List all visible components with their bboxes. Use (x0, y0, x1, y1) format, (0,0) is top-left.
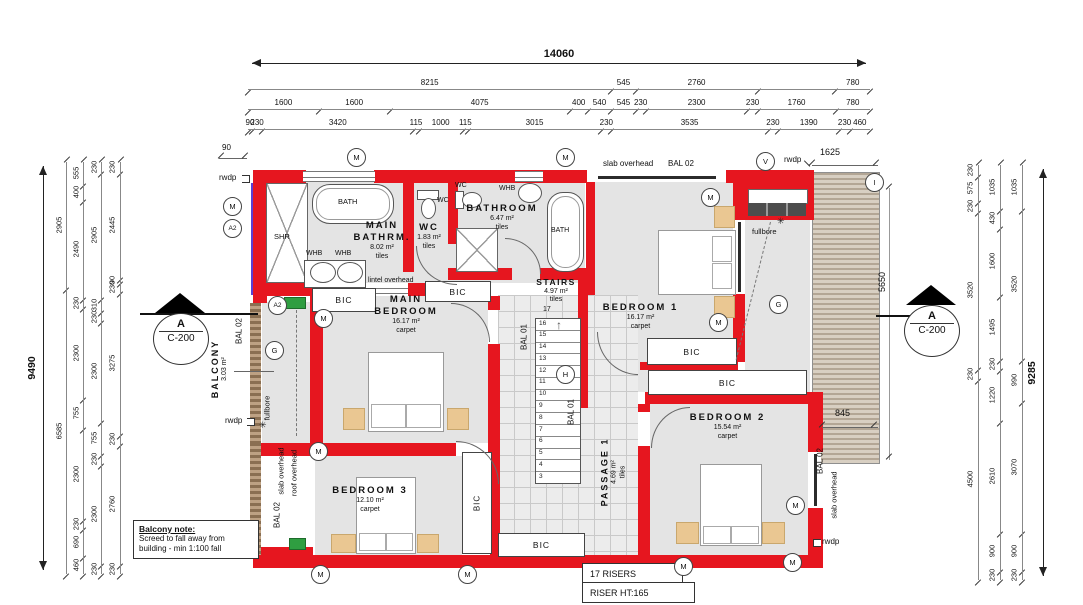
wall-main-bedroom-right-b (488, 344, 500, 454)
dim-1625-line (812, 165, 878, 166)
bal01-label-right: BAL 01 (567, 399, 576, 425)
pillow (359, 533, 386, 551)
pillow (703, 526, 731, 544)
marker-g: G (265, 341, 284, 360)
roof-overhead-left: roof overhead (290, 450, 299, 496)
room-label-bedroom2: BEDROOM 2 15.54 m² carpet (685, 412, 770, 441)
stairs-top-number: 17 (543, 306, 551, 313)
marker-m: M (709, 313, 728, 332)
dim-left-col4: 230290531023023007552302300230 (86, 162, 102, 574)
cupboard-dark-hatch (748, 203, 806, 216)
room-label-passage: PASSAGE 1 4.69 m² tiles (600, 438, 629, 507)
marker-v: V (756, 152, 775, 171)
dim-right-col-mid: 10354301600149523012202610900230 (984, 165, 1001, 580)
rwdp-top-right: rwdp (784, 155, 801, 164)
section-marker-right: A C-200 (904, 305, 960, 357)
bic-bedroom3-label: BIC (473, 495, 482, 511)
slab-overhead-left: slab overhead (277, 447, 286, 494)
dim-5650: 5650 (877, 272, 887, 292)
marker-i: I (865, 173, 884, 192)
dim-right-col-outer: 103535209903070900230 (1006, 165, 1023, 580)
room-label-stairs: STAIRS 4.97 m² tiles (525, 277, 587, 305)
pillow (731, 526, 759, 544)
bath-label: BATH (338, 197, 357, 206)
whb-basin-3 (518, 183, 542, 203)
dim-845: 845 (835, 408, 850, 418)
shower-bathroom (456, 228, 498, 272)
dim-line (252, 63, 866, 65)
bal01-label-left: BAL 01 (520, 324, 529, 350)
marker-m: M (701, 188, 720, 207)
rwdp-top-left: rwdp (219, 173, 236, 182)
marker-h: H (556, 365, 575, 384)
pillow (406, 404, 441, 428)
marker-m: M (309, 442, 328, 461)
side-table (331, 534, 356, 553)
section-triangle-icon (155, 293, 205, 313)
side-table (714, 206, 735, 228)
bath2-label: BATH (551, 227, 569, 234)
cupboard-counter (748, 189, 808, 204)
floor-balcony-left (262, 302, 310, 443)
bal02-left-lower: BAL 02 (273, 502, 282, 528)
wall-passage-a (638, 404, 650, 412)
balcony-drain-dashed-line (296, 310, 297, 436)
marker-a2: A2 (268, 296, 287, 315)
fullbore-outlet-icon: ✳ (259, 420, 267, 431)
lintel-label: lintel overhead (368, 277, 414, 284)
dim-90: 90 (222, 143, 231, 152)
dim-right-col-inner: 23057523035202304500 (962, 165, 979, 580)
balcony-note-box: Balcony note: Screed to fall away from b… (133, 520, 259, 559)
room-label-bedroom3: BEDROOM 3 12.10 m² carpet (330, 485, 410, 514)
pillow (371, 404, 406, 428)
dim-left-col3: 555400249023023007552300230690460 (68, 162, 84, 574)
room-label-balcony: BALCONY 3.03 m² (210, 340, 230, 399)
wall-finish-line (251, 183, 253, 295)
bic-bedroom2: BIC (648, 370, 807, 395)
fullbore-outlet-icon: ✳ (777, 216, 785, 227)
marker-m: M (223, 197, 242, 216)
stairs-up-arrow-icon: ↑ (556, 318, 562, 332)
balcony-leader-line (234, 371, 274, 372)
section-line-left (140, 313, 258, 315)
dim-left-overall: 9490 (34, 162, 48, 574)
dim-left-col5: 23024459023032752302760230 (104, 162, 121, 574)
marker-m: M (347, 148, 366, 167)
riser-height-box: RISER HT:165 (582, 582, 695, 603)
marker-m: M (674, 557, 693, 576)
fullbore-left: fullbore (263, 396, 272, 421)
wc-fixture-label: WC (437, 197, 449, 204)
marker-m: M (314, 309, 333, 328)
side-table (417, 534, 439, 553)
fullbore-right: fullbore (752, 227, 777, 236)
room-label-main-bedroom: MAIN BEDROOM 16.17 m² carpet (366, 294, 446, 335)
dim-line (1043, 169, 1045, 576)
dim-5650-line (889, 188, 890, 460)
whb-basin-2 (337, 262, 363, 283)
section-marker-left: A C-200 (153, 313, 209, 365)
dim-1625: 1625 (820, 147, 840, 157)
whb-label-3: WHB (499, 185, 515, 192)
slab-overhead-top: slab overhead (603, 159, 653, 168)
dim-top-row3: 16001600407540054054523023002301760780 (248, 96, 870, 110)
pillow (712, 263, 732, 289)
marker-m: M (458, 565, 477, 584)
marker-m: M (786, 496, 805, 515)
bal02-top: BAL 02 (668, 159, 694, 168)
dim-top-overall: 14060 (248, 44, 870, 68)
rwdp-outlet-icon (247, 418, 255, 426)
wc-pan (421, 198, 436, 219)
bic-bedroom1: BIC (647, 338, 737, 365)
rwdp-outlet-icon (813, 539, 821, 547)
pillow (386, 533, 413, 551)
wall-bottom-left-block (253, 547, 313, 568)
window-bathroom (515, 171, 543, 182)
green-marker-bottom (289, 538, 306, 550)
room-label-bedroom1: BEDROOM 1 16.17 m² carpet (598, 302, 683, 331)
side-table (447, 408, 469, 430)
window-main-bathrm (303, 171, 375, 182)
slab-overhead-right: slab overhead (830, 471, 839, 518)
wc2-label: WC (455, 182, 467, 189)
slider-door-bedroom1 (738, 222, 741, 292)
dim-top-row4: 9023034201151000115301523035352301390230… (248, 116, 870, 130)
bal02-left-upper: BAL 02 (235, 318, 244, 344)
dim-845-line (822, 427, 878, 428)
dim-right-overall: 9285 (1034, 165, 1048, 580)
dim-top-overall-label: 14060 (544, 48, 575, 60)
marker-m: M (311, 565, 330, 584)
rwdp-outlet-icon (242, 175, 250, 183)
floor-plan: 14060 82155452760780 1600160040754005405… (0, 0, 1083, 605)
room-label-wc: WC 1.83 m² tiles (408, 222, 450, 251)
shr-label: SHR (274, 232, 290, 241)
bal02-right: BAL 02 (816, 448, 825, 474)
pillow (712, 236, 732, 262)
side-table (343, 408, 365, 430)
side-table (762, 522, 785, 544)
risers-box: 17 RISERS (582, 563, 683, 584)
rwdp-bottom-right: rwdp (822, 537, 839, 546)
whb-label-1: WHB (306, 250, 322, 257)
section-triangle-icon (906, 285, 956, 305)
side-table (676, 522, 699, 544)
slider-door-top (598, 176, 716, 179)
marker-m: M (783, 553, 802, 572)
dim-top-row2: 82155452760780 (248, 76, 870, 90)
marker-m: M (556, 148, 575, 167)
marker-g: G (769, 295, 788, 314)
dim-right-overall-label: 9285 (1026, 361, 1038, 384)
room-label-bathroom: BATHROOM 6.47 m² tiles (458, 203, 546, 232)
bic-bottom: BIC (498, 533, 585, 557)
dim-line (43, 166, 45, 570)
wall-passage-b (638, 446, 650, 555)
green-marker-top (284, 297, 306, 309)
marker-a2: A2 (223, 219, 242, 238)
rwdp-balcony-left: rwdp (225, 416, 242, 425)
whb-basin-1 (310, 262, 336, 283)
dim-left-col2: 29056585 (52, 162, 67, 574)
dim-left-overall-label: 9490 (26, 356, 38, 379)
wall-bedroom2-right-a (808, 404, 823, 452)
